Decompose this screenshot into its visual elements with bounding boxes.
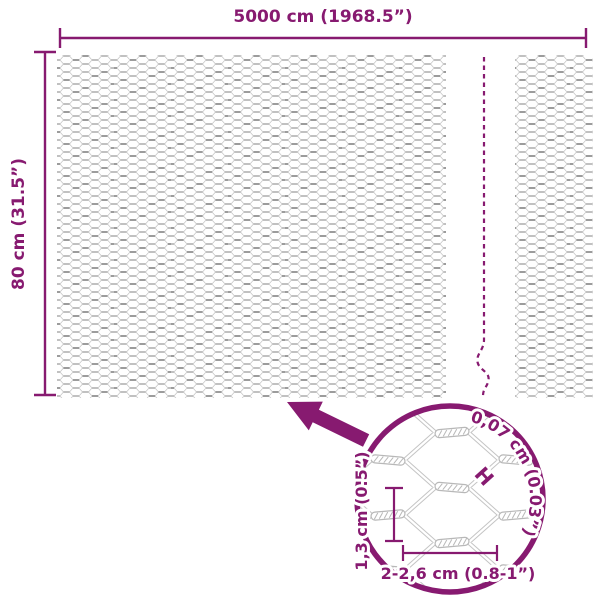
hex-mesh-product-diagram: 5000 cm (1968.5”) 80 cm (31.5”) 1,3 cm (…: [0, 0, 600, 600]
mesh-panel-main: [57, 55, 446, 398]
height-dimension: 80 cm (31.5”): [9, 52, 56, 395]
diagram-canvas: 5000 cm (1968.5”) 80 cm (31.5”) 1,3 cm (…: [0, 0, 600, 600]
cell-width-label: 2-2,6 cm (0.8-1”): [381, 564, 536, 583]
width-dimension-label: 5000 cm (1968.5”): [233, 7, 412, 27]
width-dimension: 5000 cm (1968.5”): [60, 7, 586, 48]
panel-break-dashed-line: [477, 57, 488, 396]
cell-height-label: 1,3 cm (0.5”): [352, 451, 371, 570]
height-dimension-label: 80 cm (31.5”): [9, 158, 29, 290]
mesh-panel-continuation: [515, 55, 593, 398]
zoom-arrow-icon: [287, 402, 369, 447]
